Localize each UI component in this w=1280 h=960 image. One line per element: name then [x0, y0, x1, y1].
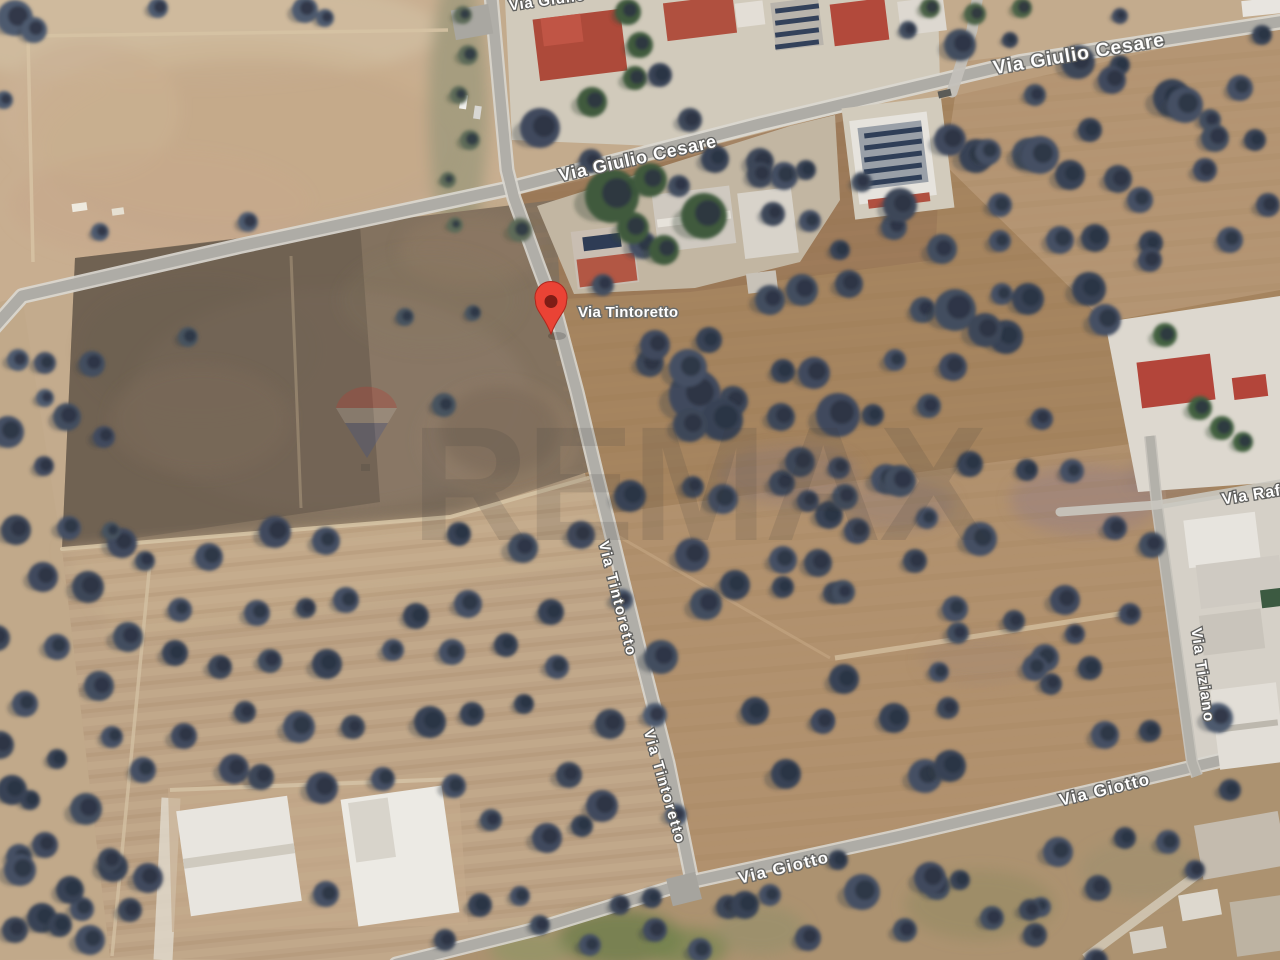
svg-text:REMAX: REMAX	[411, 392, 987, 575]
svg-text:Via Tintoretto: Via Tintoretto	[578, 304, 678, 321]
